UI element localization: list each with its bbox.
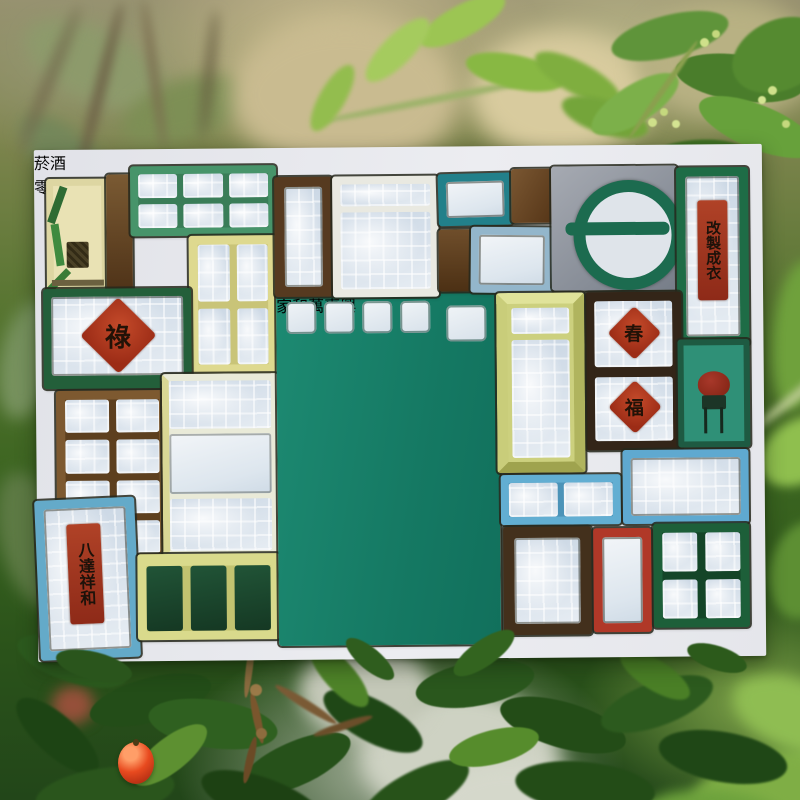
window-pane [198, 244, 230, 301]
red-berry [118, 742, 154, 784]
plant-leaf [51, 224, 65, 267]
spring-character: 春 [625, 319, 644, 346]
window-pane [346, 301, 370, 331]
stand-leg [720, 407, 723, 433]
wood-block [438, 229, 473, 291]
window-pane [169, 380, 271, 429]
window-pane [347, 412, 371, 442]
window-brown-narrow [274, 177, 333, 298]
window-cream-tall [189, 235, 278, 374]
window-pane [116, 439, 160, 473]
red-plant-pot [698, 371, 730, 397]
window-red [593, 528, 652, 633]
window-pane [65, 400, 109, 434]
window-pane [284, 187, 323, 287]
window-pane [183, 174, 223, 198]
window-sill [52, 280, 104, 286]
transom-window [400, 301, 430, 333]
window-pane [706, 579, 741, 618]
window-pane [236, 244, 268, 301]
window-yellow-tall [496, 292, 586, 473]
window-spring-fortune: 春 福 [585, 292, 682, 451]
branch-or-bud [782, 120, 790, 128]
window-pane [190, 566, 227, 631]
plant-pot [67, 242, 89, 268]
window-green-threepane [137, 553, 280, 640]
branch-or-bud [648, 118, 657, 127]
window-pane [237, 308, 269, 365]
window-pane [65, 440, 109, 474]
branch-or-bud [712, 30, 720, 38]
window-pane [346, 338, 370, 368]
alteration-sign: 改製成衣 [697, 200, 728, 300]
window-pane [229, 173, 269, 197]
window-pane [346, 375, 370, 405]
window-pane [286, 412, 310, 442]
window-alteration-sign: 改製成衣 [676, 167, 750, 346]
double-door: 家和萬事興 [276, 291, 501, 646]
postcard: 菸酒 零售商 祿 八達祥和 [34, 144, 766, 662]
wood-block [511, 169, 553, 223]
alteration-text: 改製成衣 [705, 220, 721, 280]
window-porthole [551, 166, 678, 291]
window-pane [229, 203, 269, 227]
sign-main-text: 菸酒 [34, 149, 130, 174]
window-pane [315, 302, 339, 332]
window-pane [630, 457, 741, 516]
window-pane [115, 399, 159, 433]
window-sash [162, 373, 280, 558]
fortune-character: 福 [625, 393, 644, 420]
stand-leg [704, 407, 707, 433]
window-pane [663, 579, 698, 618]
window-potted-plant [46, 179, 109, 292]
door-knob [279, 578, 381, 579]
garden-photo: 菸酒 零售商 祿 八達祥和 [0, 0, 800, 800]
window-hanging-plant [677, 339, 750, 448]
wood-post [106, 174, 133, 290]
door-right [279, 578, 383, 800]
branch-or-bud [672, 120, 680, 128]
window-pane [285, 302, 309, 332]
window-pane [511, 308, 569, 335]
branch-or-bud [700, 38, 709, 47]
window-green-fourpane [653, 523, 750, 628]
window-pane [602, 537, 643, 623]
branch-or-bud [768, 86, 777, 95]
window-pane [340, 184, 430, 207]
bada-sign: 八達祥和 [66, 523, 104, 624]
branch-or-bud [758, 96, 766, 104]
window-blue-small [470, 227, 553, 294]
window-pane [564, 482, 613, 516]
window-bada-sign: 八達祥和 [34, 497, 141, 661]
lu-character: 祿 [105, 317, 131, 354]
window-pane [509, 483, 558, 517]
branch-or-bud [660, 108, 668, 116]
window-pane [479, 235, 545, 286]
window-pane [146, 566, 183, 631]
window-pane [514, 537, 581, 624]
window-pane [316, 375, 340, 405]
bada-text: 八達祥和 [76, 542, 95, 607]
window-pane [285, 339, 309, 369]
window-pane [184, 204, 224, 228]
branch-or-bud [250, 684, 262, 696]
window-pane [662, 532, 697, 571]
window-pane [234, 565, 271, 630]
branch-or-bud [256, 728, 267, 739]
window-green-grid [130, 165, 277, 236]
window-pane [340, 212, 431, 290]
window-pane [138, 174, 178, 198]
window-teal-small [438, 172, 513, 226]
porthole-bar [565, 222, 669, 236]
window-pane [705, 532, 740, 571]
window-pane [316, 338, 340, 368]
window-pane [170, 498, 272, 551]
side-panel-window [446, 305, 486, 341]
window-pane [169, 433, 272, 494]
window-pane [138, 204, 178, 228]
window-pane [316, 412, 340, 442]
window-blue-large [622, 449, 749, 524]
plant-leaf [47, 186, 67, 224]
window-dark-brown [503, 526, 592, 635]
window-pane [446, 181, 505, 219]
window-pane [511, 340, 570, 459]
window-pane [198, 308, 230, 365]
window-pane [286, 375, 310, 405]
window-blue-twopane [501, 474, 621, 525]
window-white-top [332, 176, 439, 298]
